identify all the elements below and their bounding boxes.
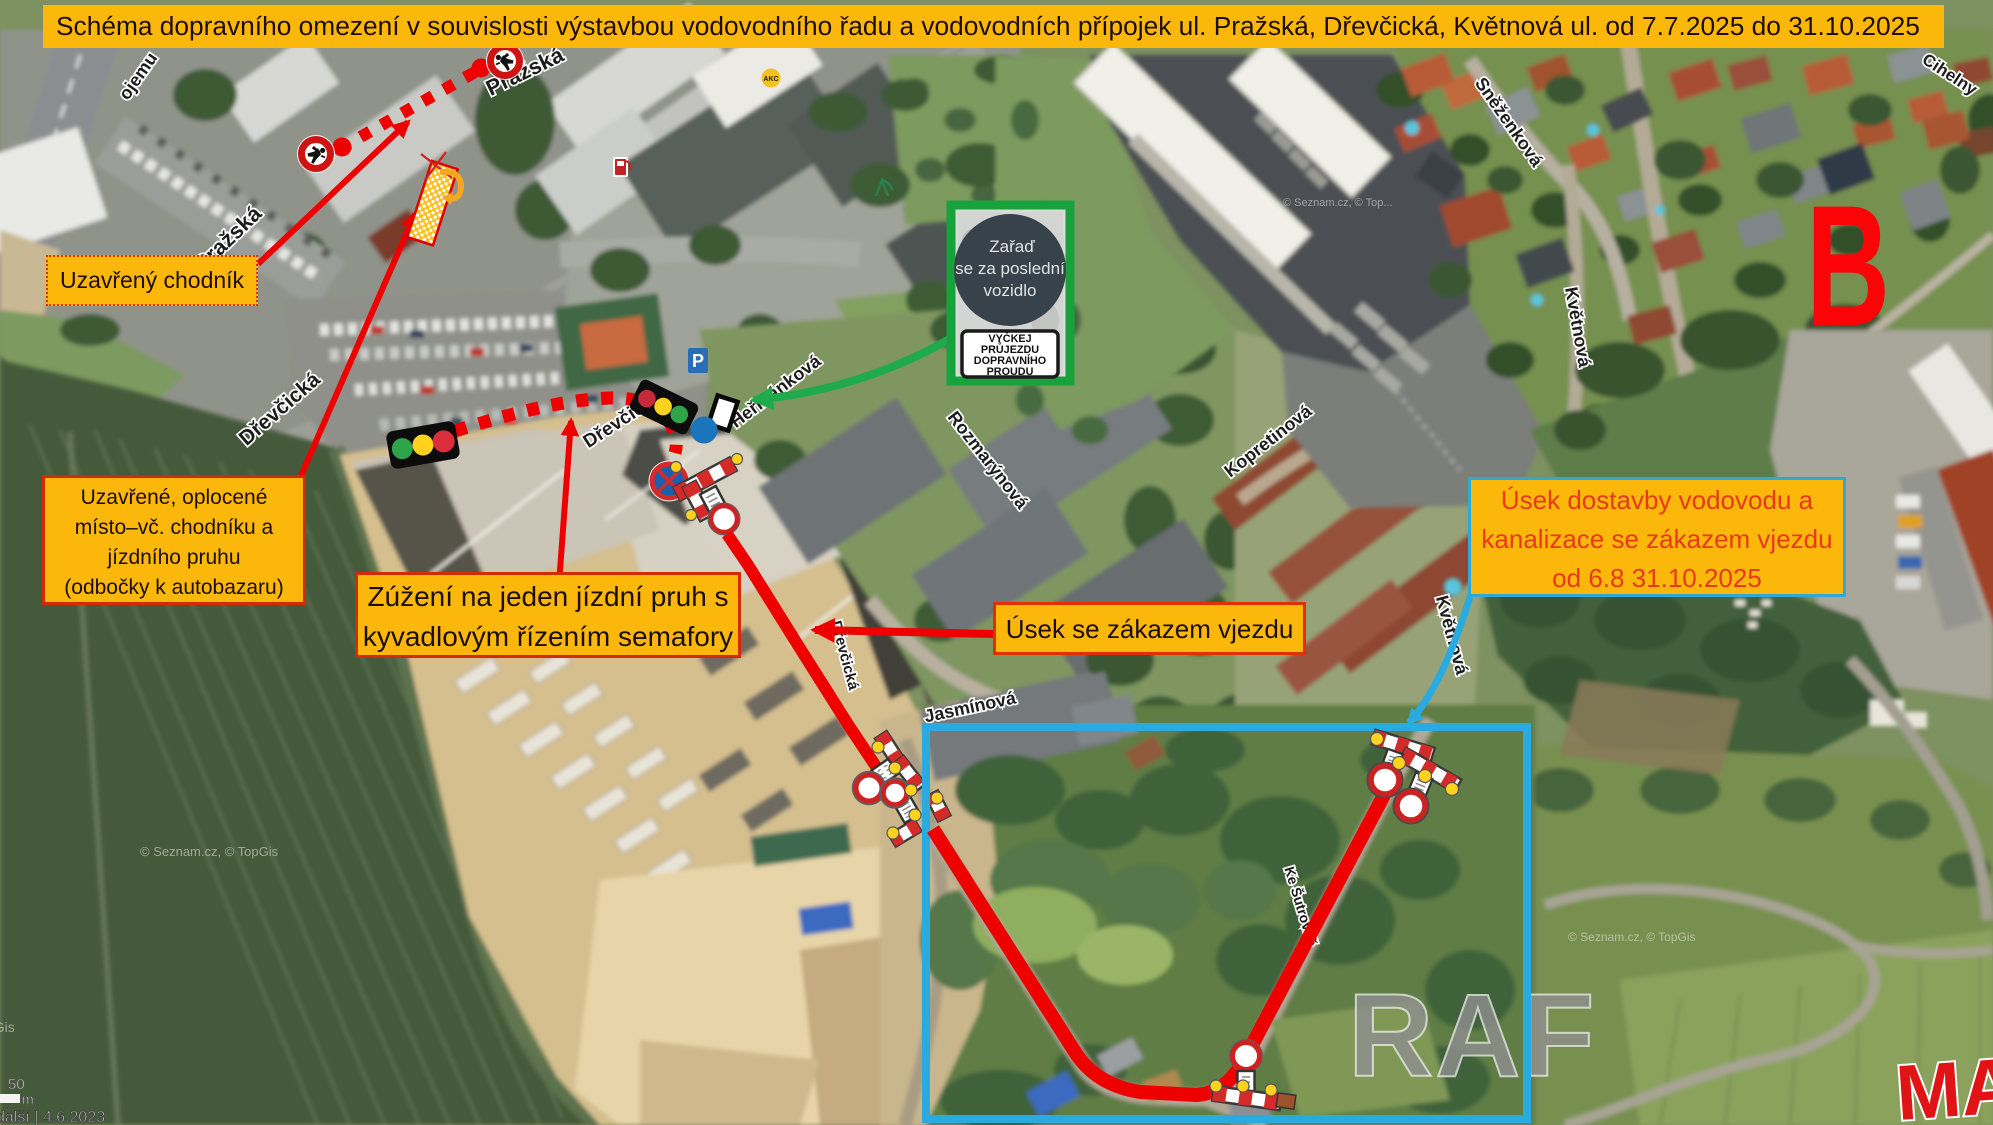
svg-text:PRŮJEZDU: PRŮJEZDU	[981, 342, 1039, 356]
svg-text:se za poslední: se za poslední	[955, 259, 1065, 278]
svg-text:vozidlo: vozidlo	[984, 281, 1037, 300]
svg-text:PROUDU: PROUDU	[987, 366, 1034, 378]
svg-text:Zařaď: Zařaď	[989, 237, 1035, 256]
